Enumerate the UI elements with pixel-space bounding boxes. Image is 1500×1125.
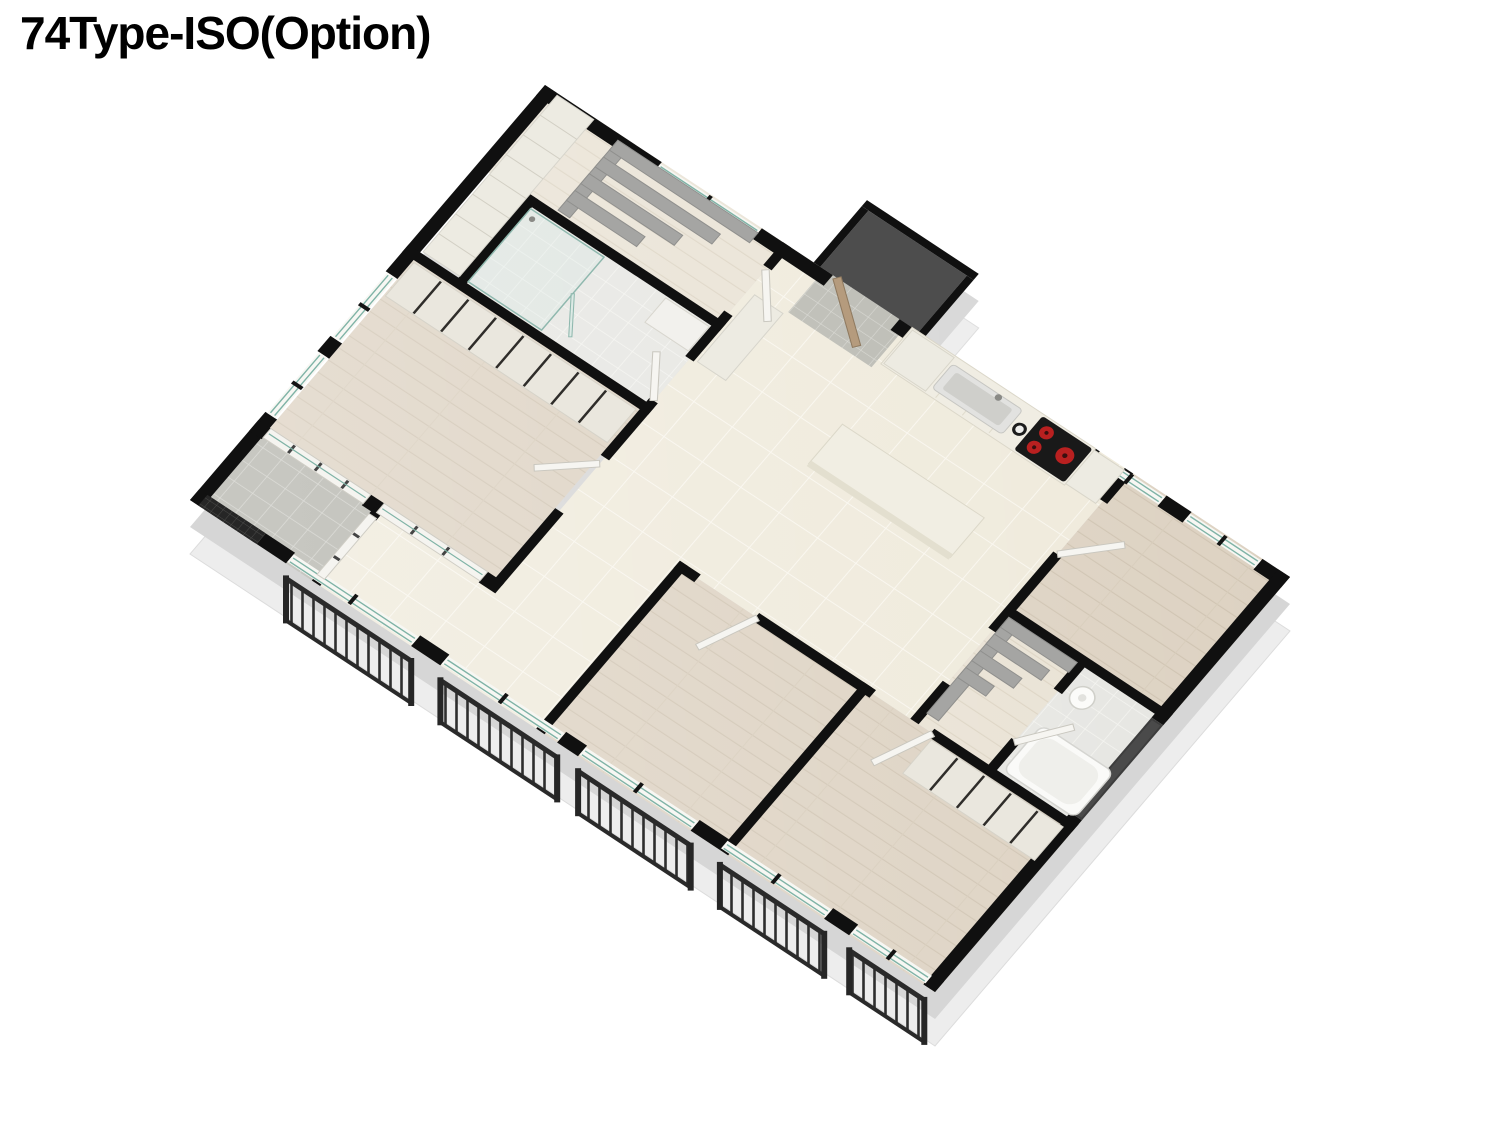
page: 74Type-ISO(Option): [0, 0, 1500, 1125]
plan-projection: [190, 23, 1343, 992]
floorplan-isometric: [0, 0, 1500, 1125]
dressing-door: [762, 270, 772, 322]
